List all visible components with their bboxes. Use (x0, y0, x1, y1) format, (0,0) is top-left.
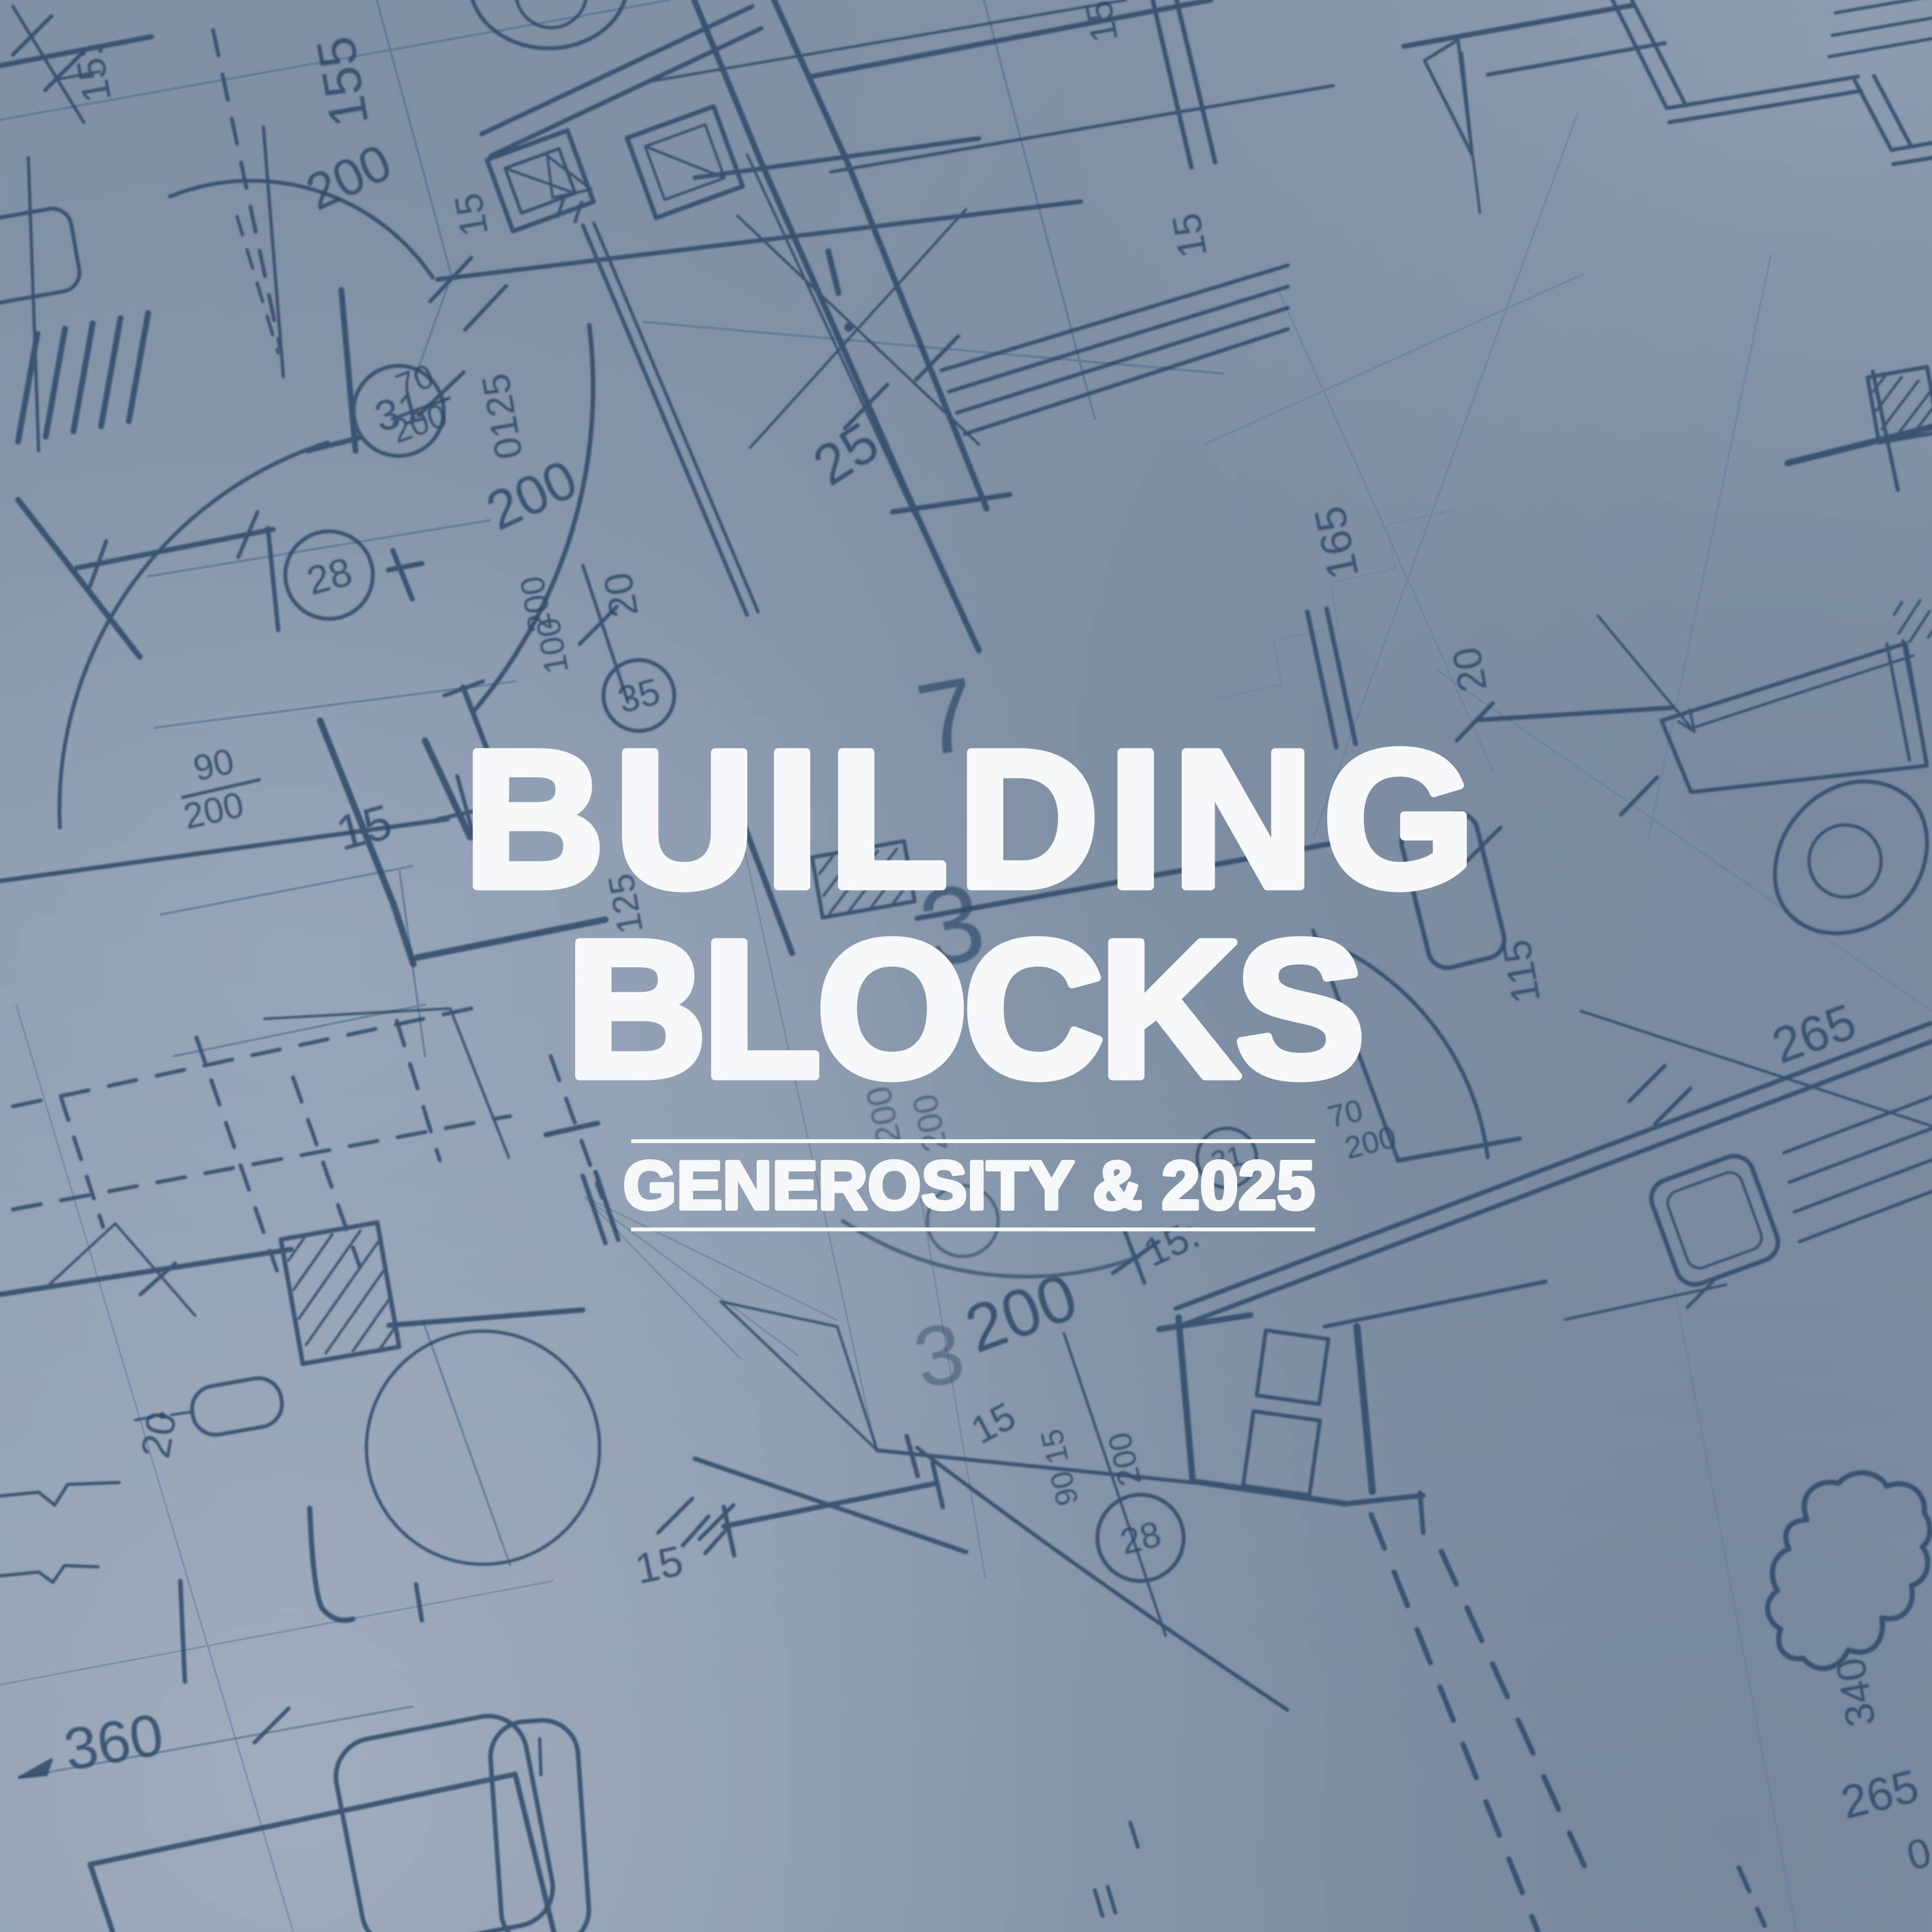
svg-text:15: 15 (1077, 0, 1126, 46)
svg-text:15: 15 (631, 1537, 687, 1593)
svg-text:20: 20 (1444, 644, 1496, 696)
svg-text:15: 15 (1164, 210, 1216, 261)
svg-text:BLOCKS: BLOCKS (566, 900, 1360, 1117)
svg-text:15:: 15: (66, 43, 120, 106)
svg-text:20: 20 (596, 569, 647, 621)
svg-text:20: 20 (132, 1408, 185, 1462)
svg-text:BUILDING: BUILDING (464, 710, 1484, 927)
svg-text:15: 15 (446, 190, 497, 240)
svg-text:GENEROSITY & 2025: GENEROSITY & 2025 (623, 1148, 1316, 1224)
